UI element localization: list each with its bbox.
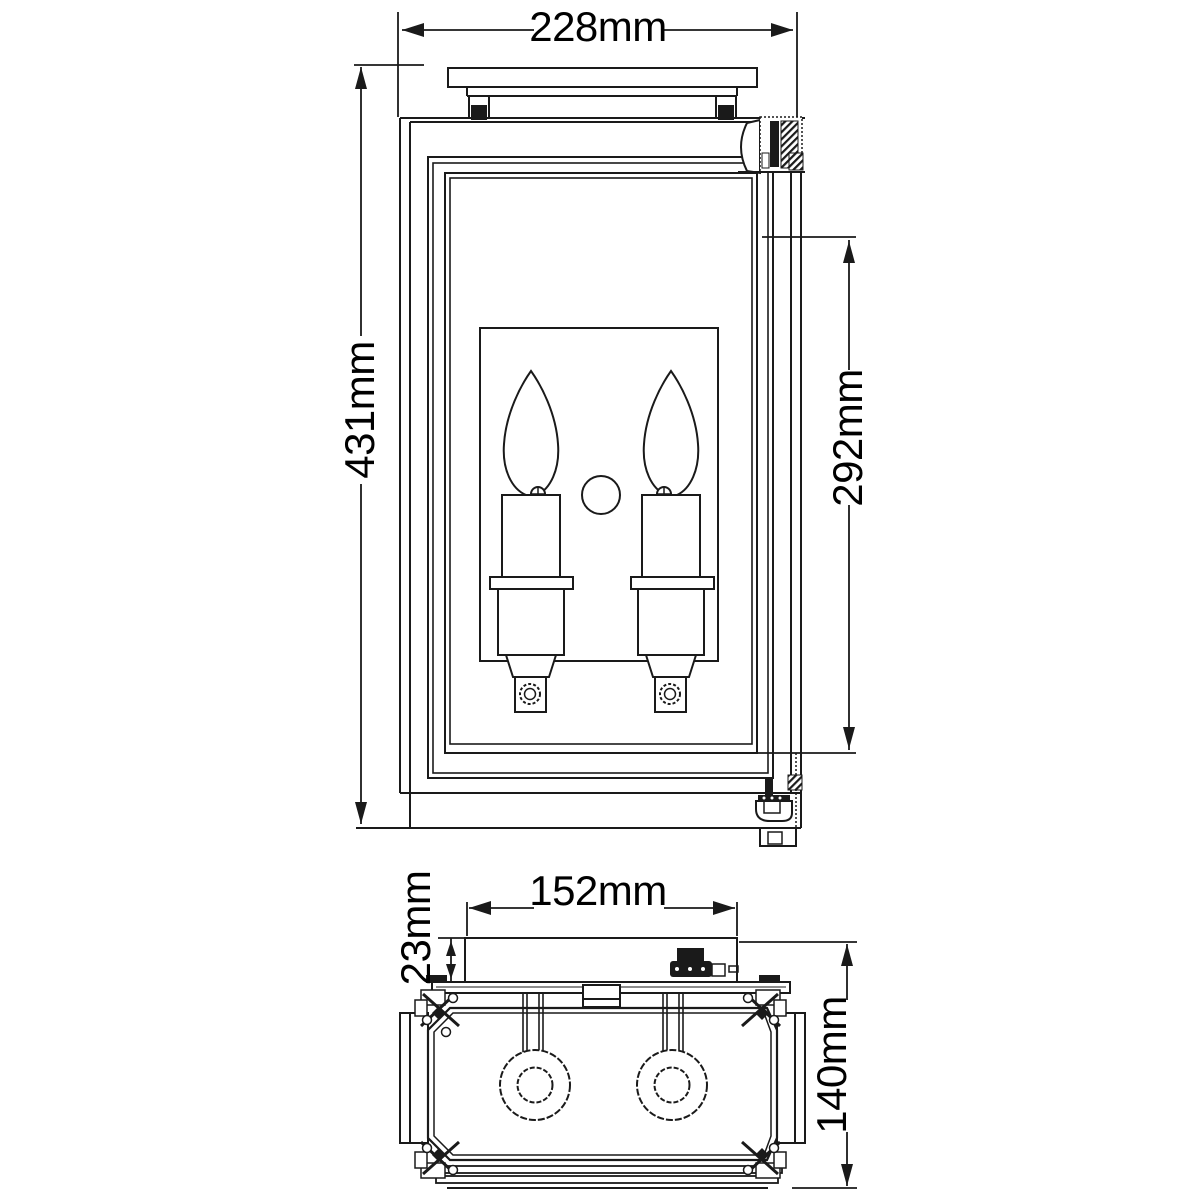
door-clip bbox=[583, 985, 620, 1007]
socket-right bbox=[638, 589, 704, 655]
drawing-canvas: 228mm 431mm 292mm 152mm 23mm 140mm bbox=[0, 0, 1200, 1200]
candle-sleeve-right bbox=[642, 495, 700, 578]
technical-drawing-page: 228mm 431mm 292mm 152mm 23mm 140mm bbox=[0, 0, 1200, 1200]
paper-background bbox=[0, 0, 1200, 1200]
dim-label-top-backplate-depth: 23mm bbox=[392, 871, 439, 986]
candle-sleeve-left bbox=[502, 495, 560, 578]
dim-label-front-width: 228mm bbox=[529, 3, 667, 50]
dim-label-top-depth: 140mm bbox=[808, 996, 855, 1134]
socket-left bbox=[498, 589, 564, 655]
section-detail-top-right bbox=[738, 117, 805, 173]
dim-label-front-height: 431mm bbox=[336, 341, 383, 479]
dim-label-top-backplate-width: 152mm bbox=[529, 867, 667, 914]
dim-label-front-glass-height: 292mm bbox=[824, 369, 871, 507]
